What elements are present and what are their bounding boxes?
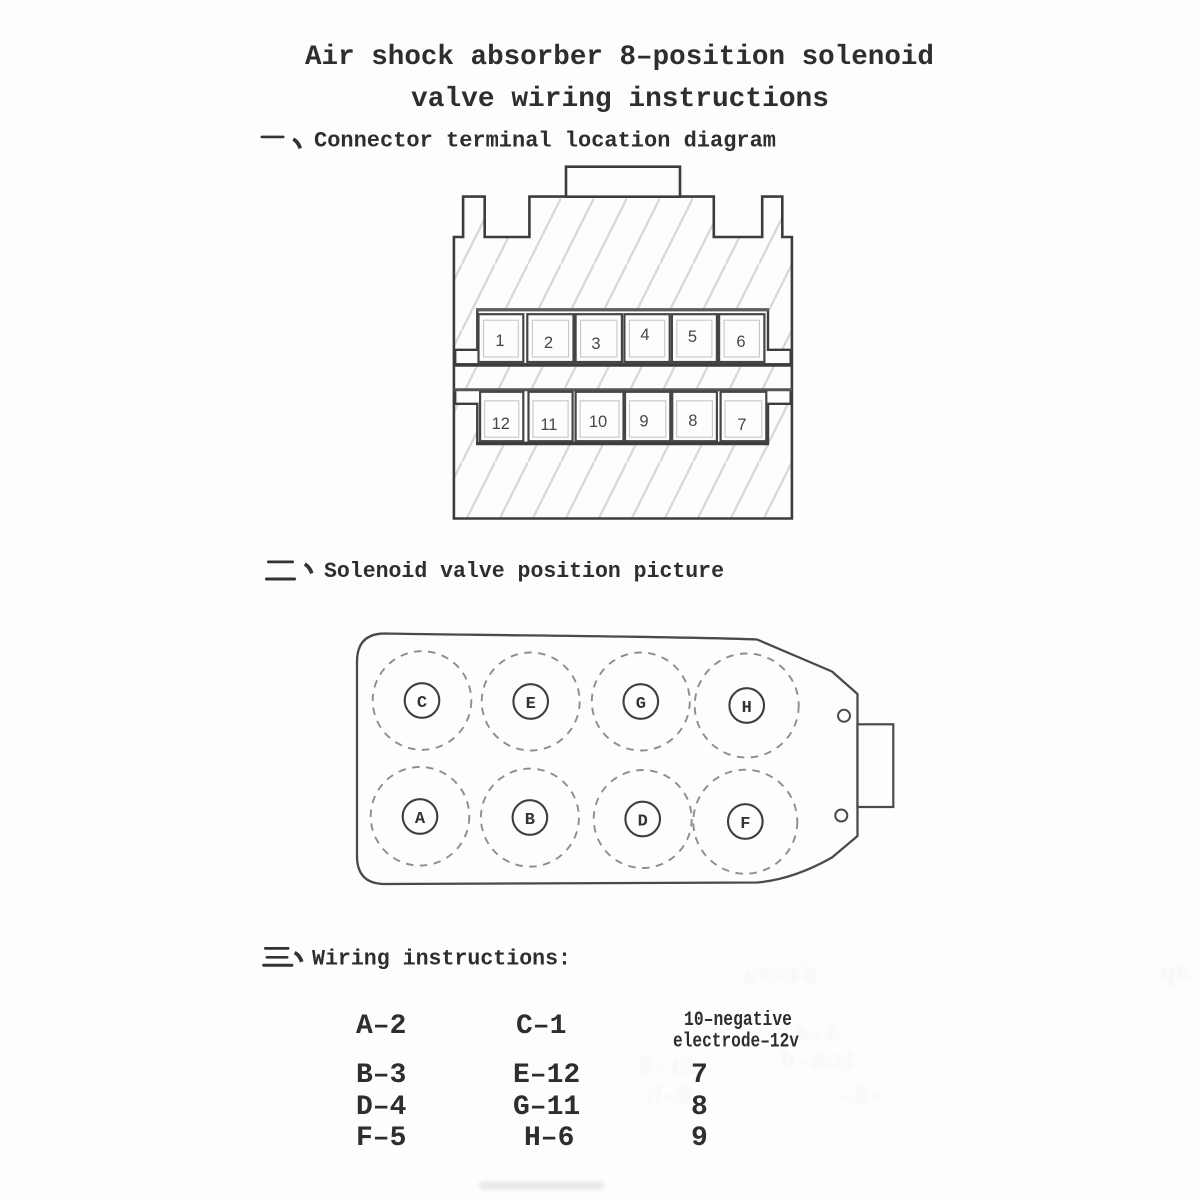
svg-text:B: B (525, 811, 535, 830)
svg-text:Air shock absorber 8–position: Air shock absorber 8–position solenoid (305, 42, 934, 73)
svg-text:9: 9 (691, 1123, 708, 1154)
svg-text:4p: 4p (1160, 960, 1190, 989)
svg-text:F: F (740, 815, 750, 834)
svg-text:10: 10 (589, 413, 607, 431)
svg-text:6: 6 (736, 333, 745, 351)
svg-text:5: 5 (688, 328, 697, 346)
svg-text:electrode–12v: electrode–12v (673, 1030, 799, 1053)
svg-text:10–negative: 10–negative (684, 1009, 792, 1032)
svg-text:C: C (417, 694, 427, 713)
svg-text:9: 9 (639, 413, 648, 431)
svg-text:Solenoid valve position pictur: Solenoid valve position picture (324, 559, 724, 584)
svg-text:8: 8 (688, 412, 697, 430)
svg-text:E–12: E–12 (513, 1060, 580, 1091)
svg-text:11: 11 (540, 416, 557, 434)
svg-text:valve wiring instructions: valve wiring instructions (411, 84, 829, 115)
svg-text:-5-: -5- (839, 1082, 884, 1111)
svg-text:H–6: H–6 (524, 1123, 574, 1154)
svg-text:A: A (415, 810, 426, 829)
svg-text:F–5: F–5 (356, 1123, 406, 1154)
svg-text:E: E (526, 695, 536, 714)
svg-text:3: 3 (591, 335, 600, 353)
svg-text:H: H (742, 699, 752, 718)
svg-text:8-h: 8-h (647, 1082, 692, 1111)
svg-text:8: 8 (691, 1092, 708, 1123)
svg-text:D–4: D–4 (356, 1092, 406, 1123)
svg-text:4: 4 (640, 326, 649, 344)
svg-text:G–11: G–11 (513, 1092, 580, 1123)
svg-text:A–2: A–2 (356, 1011, 406, 1042)
svg-text:2: 2 (544, 334, 553, 352)
svg-text:12: 12 (492, 415, 510, 433)
svg-text:G: G (636, 695, 646, 714)
svg-text:B–3: B–3 (356, 1060, 406, 1091)
svg-text:tca-d: tca-d (781, 1047, 856, 1076)
svg-text:4-4: 4-4 (795, 1021, 840, 1050)
svg-text:1: 1 (495, 332, 504, 350)
svg-text:11-9: 11-9 (638, 1053, 698, 1082)
svg-text:C–1: C–1 (516, 1011, 566, 1042)
svg-text:7: 7 (737, 416, 746, 434)
svg-text:d4%#a: d4%#a (743, 962, 818, 991)
svg-text:Connector terminal location di: Connector terminal location diagram (314, 129, 776, 154)
svg-text:D: D (638, 813, 648, 832)
svg-text:Wiring instructions:: Wiring instructions: (312, 947, 571, 972)
